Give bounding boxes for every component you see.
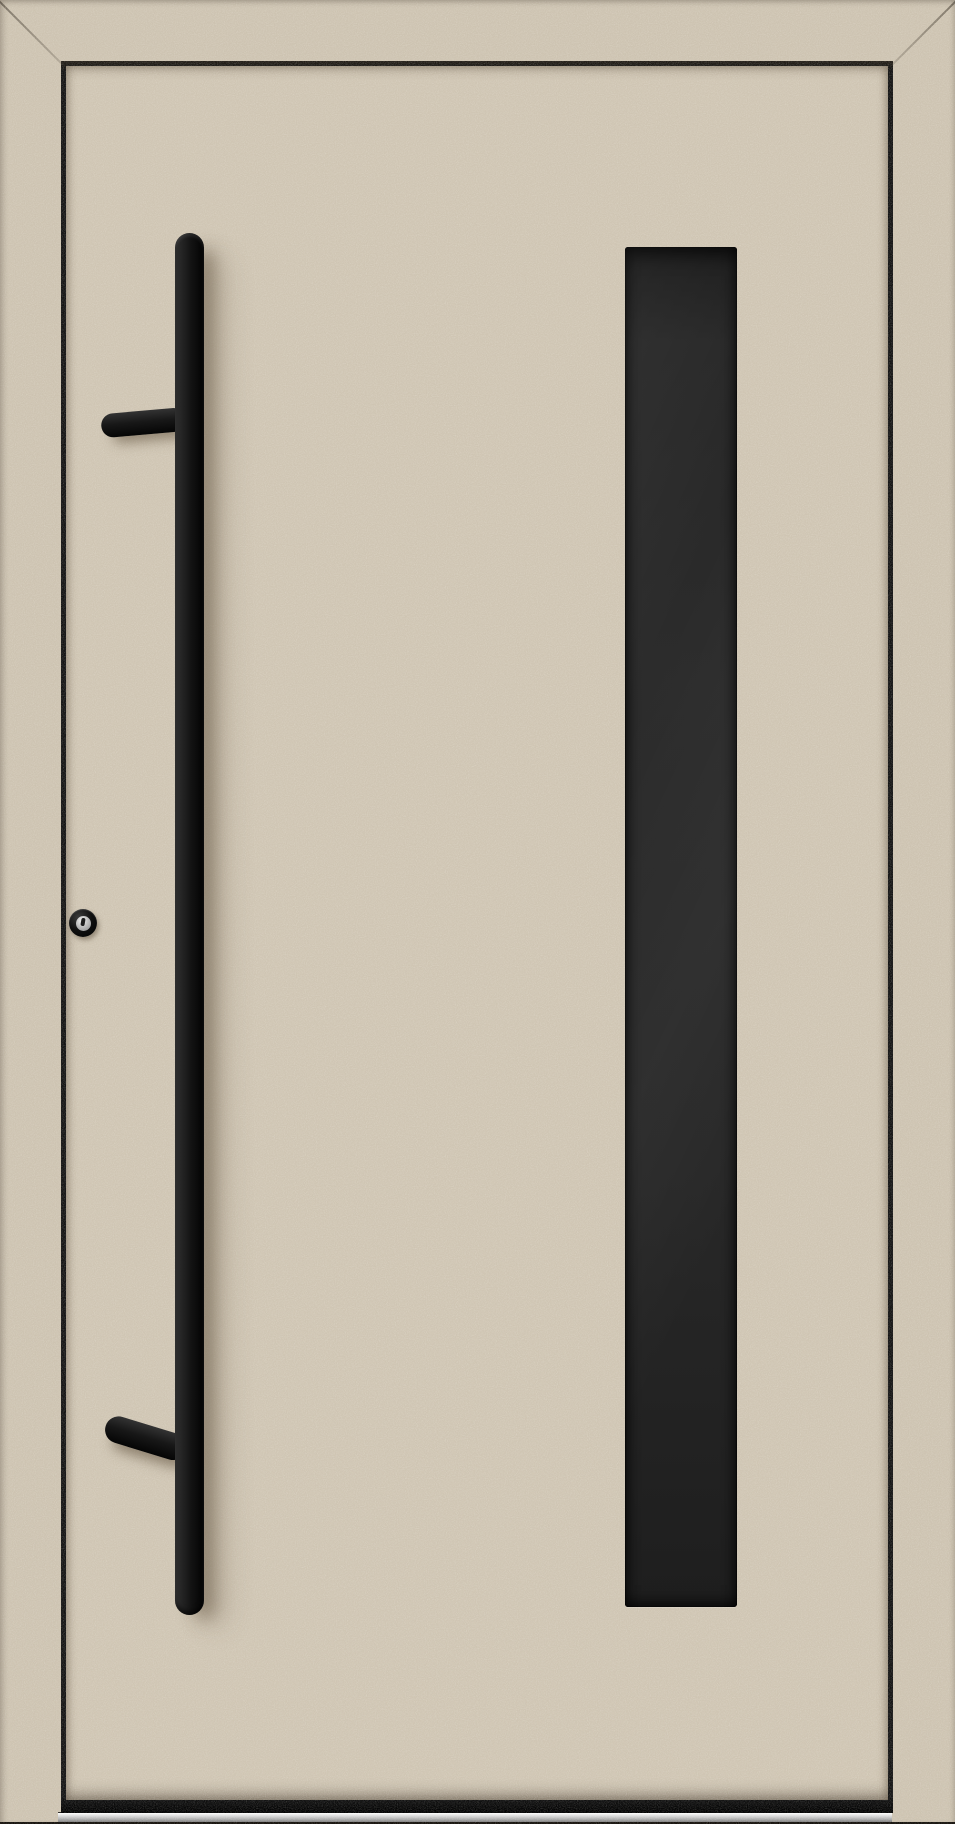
- glass-reflection: [625, 247, 737, 1607]
- frame-miter-top-right: [890, 0, 955, 66]
- keyhole-slot: [80, 918, 85, 927]
- door-photo: [0, 0, 955, 1824]
- frame-miter-top-left: [0, 0, 65, 66]
- keyhole: [69, 909, 97, 937]
- threshold: [58, 1813, 892, 1822]
- pull-handle-bar: [175, 233, 204, 1615]
- glass-panel: [625, 247, 737, 1607]
- keyhole-core: [76, 916, 91, 931]
